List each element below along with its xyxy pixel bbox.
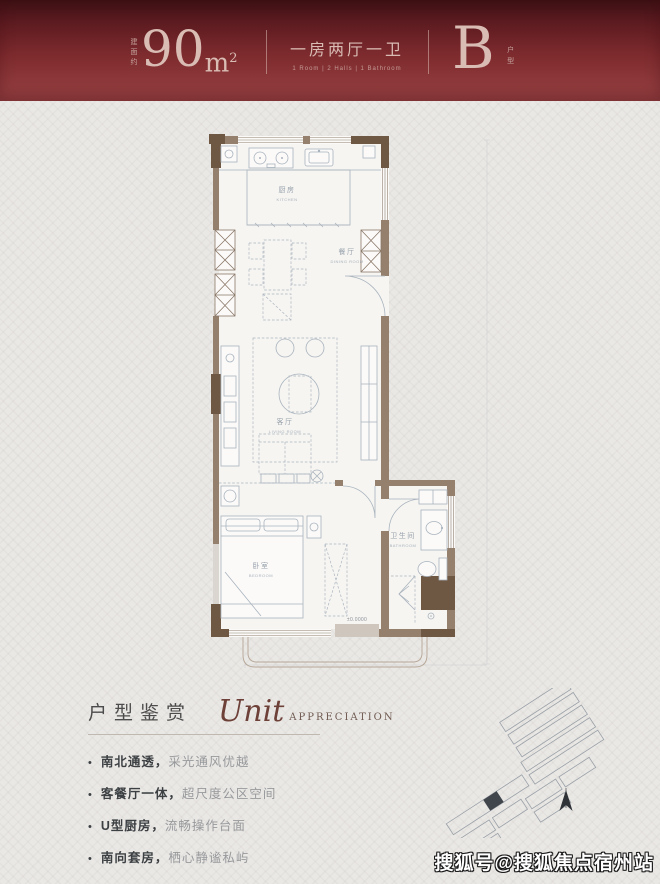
washing-machine <box>221 486 239 506</box>
dining-label-cn: 餐厅 <box>339 247 356 256</box>
feature-bullet: • 南北通透，采光通风优越 <box>88 751 418 770</box>
feature-bullets: • 南北通透，采光通风优越 • 客餐厅一体，超尺度公区空间 • U型厨房，流畅操… <box>88 751 418 866</box>
bullet-text: 栖心静谧私屿 <box>168 851 249 865</box>
appreciation-heading: 户型鉴赏 Unit APPRECIATION <box>88 698 418 725</box>
layout-group: 一房两厅一卫 1 Room | 2 Halls | 1 Bathroom <box>276 36 418 72</box>
appreciation-title-cn: 户型鉴赏 <box>88 698 192 725</box>
bullet-dot: • <box>88 789 93 801</box>
bath-label-cn: 卫生间 <box>390 531 416 540</box>
area-unit-m: m <box>205 49 230 79</box>
bullet-text: 采光通风优越 <box>168 755 249 769</box>
unit-type-suffix: 户型 <box>505 46 515 80</box>
bullet-text: 流畅操作台面 <box>165 819 246 833</box>
highlighted-building <box>483 791 503 811</box>
unit-type-letter: B <box>452 16 495 80</box>
window-top-right <box>310 136 351 144</box>
watermark-text: 搜狐号@搜狐焦点宿州站 <box>434 848 654 875</box>
tv-cabinet <box>221 346 239 466</box>
ac-platform <box>335 624 379 637</box>
site-buildings <box>420 688 623 838</box>
area-prefix-label: 建面约 <box>128 38 138 68</box>
layout-cn-label: 一房两厅一卫 <box>276 36 418 60</box>
window-bath-right <box>447 496 455 548</box>
bedroom-label-en: BEDROOM <box>249 573 273 578</box>
appreciation-section: 户型鉴赏 Unit APPRECIATION • 南北通透，采光通风优越 • 客… <box>88 698 418 879</box>
feature-bullet: • 客餐厅一体，超尺度公区空间 <box>88 783 418 802</box>
dining-label-en: DINING ROOM <box>330 259 363 264</box>
floorplan-drawing: 厨房 KITCHEN 餐厅 DINING ROOM <box>195 124 495 684</box>
window-left-bedroom <box>213 544 219 604</box>
living-label-en: LIVING ROOM <box>269 429 301 434</box>
header-divider-left <box>266 30 267 74</box>
header-divider-right <box>428 30 429 74</box>
bullet-text: 超尺度公区空间 <box>182 787 277 801</box>
area-unit-sup: 2 <box>229 51 237 66</box>
window-top-left <box>238 136 303 144</box>
corner-cabinet <box>221 146 237 162</box>
header-banner: 建面约 90 m2 一房两厅一卫 1 Room | 2 Halls | 1 Ba… <box>0 0 660 101</box>
bullet-bold: 客餐厅一体， <box>101 787 182 801</box>
living-label-cn: 客厅 <box>277 417 294 426</box>
feature-bullet: • U型厨房，流畅操作台面 <box>88 815 418 834</box>
unit-type-group: B 户型 <box>452 16 515 80</box>
kitchen-label-cn: 厨房 <box>279 185 296 194</box>
level-mark: ±0.0000 <box>347 617 367 623</box>
layout-en-label: 1 Room | 2 Halls | 1 Bathroom <box>276 66 418 72</box>
bullet-dot: • <box>88 757 93 769</box>
stove <box>249 148 293 168</box>
window-bottom <box>229 629 331 637</box>
kitchen-appliance <box>363 146 375 158</box>
area-group: 建面约 90 m2 <box>128 24 238 77</box>
appreciation-title-en: APPRECIATION <box>289 712 394 723</box>
mirror-cabinet <box>419 490 447 504</box>
heading-underline <box>88 734 320 735</box>
bedroom-label-cn: 卧室 <box>253 561 270 570</box>
balcony <box>243 637 427 667</box>
sink <box>305 149 333 166</box>
header-banner-inner: 建面约 90 m2 一房两厅一卫 1 Room | 2 Halls | 1 Ba… <box>0 0 660 101</box>
window-right-kitchen <box>381 168 389 220</box>
bullet-bold: 南向套房， <box>101 851 169 865</box>
bullet-dot: • <box>88 853 93 865</box>
nightstand <box>307 516 321 538</box>
area-unit: m2 <box>205 46 238 77</box>
bullet-bold: 南北通透， <box>101 755 169 769</box>
bullet-bold: U型厨房， <box>101 819 165 833</box>
kitchen-label-en: KITCHEN <box>276 197 297 202</box>
site-plan-map <box>420 688 650 838</box>
feature-bullet: • 南向套房，栖心静谧私屿 <box>88 847 418 866</box>
bath-label-en: BATHROOM <box>390 543 417 548</box>
north-arrow-icon <box>560 788 572 810</box>
area-number: 90 <box>141 24 205 74</box>
bullet-dot: • <box>88 821 93 833</box>
washbasin <box>421 510 447 550</box>
appreciation-title-script: Unit <box>218 699 284 725</box>
